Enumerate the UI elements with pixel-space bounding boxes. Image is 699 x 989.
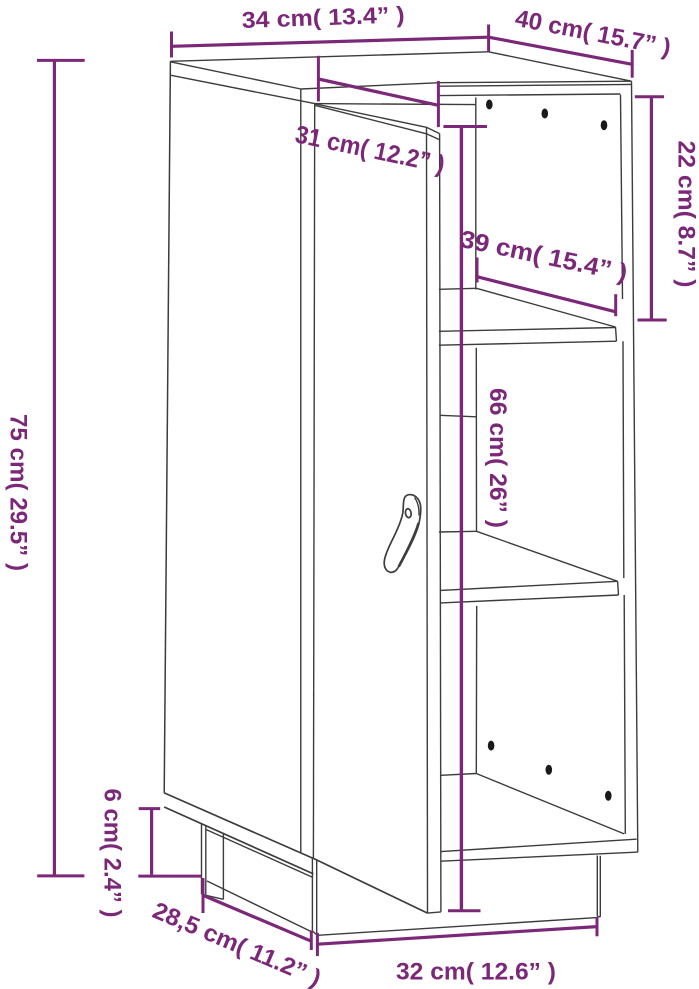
svg-text:6 cm( 2.4” ): 6 cm( 2.4” ) <box>99 789 126 918</box>
svg-text:66 cm( 26” ): 66 cm( 26” ) <box>484 388 511 528</box>
svg-text:32 cm( 12.6” ): 32 cm( 12.6” ) <box>396 959 556 986</box>
svg-text:75 cm( 29.5” ): 75 cm( 29.5” ) <box>5 414 32 571</box>
svg-text:22 cm( 8.7” ): 22 cm( 8.7” ) <box>673 141 699 288</box>
